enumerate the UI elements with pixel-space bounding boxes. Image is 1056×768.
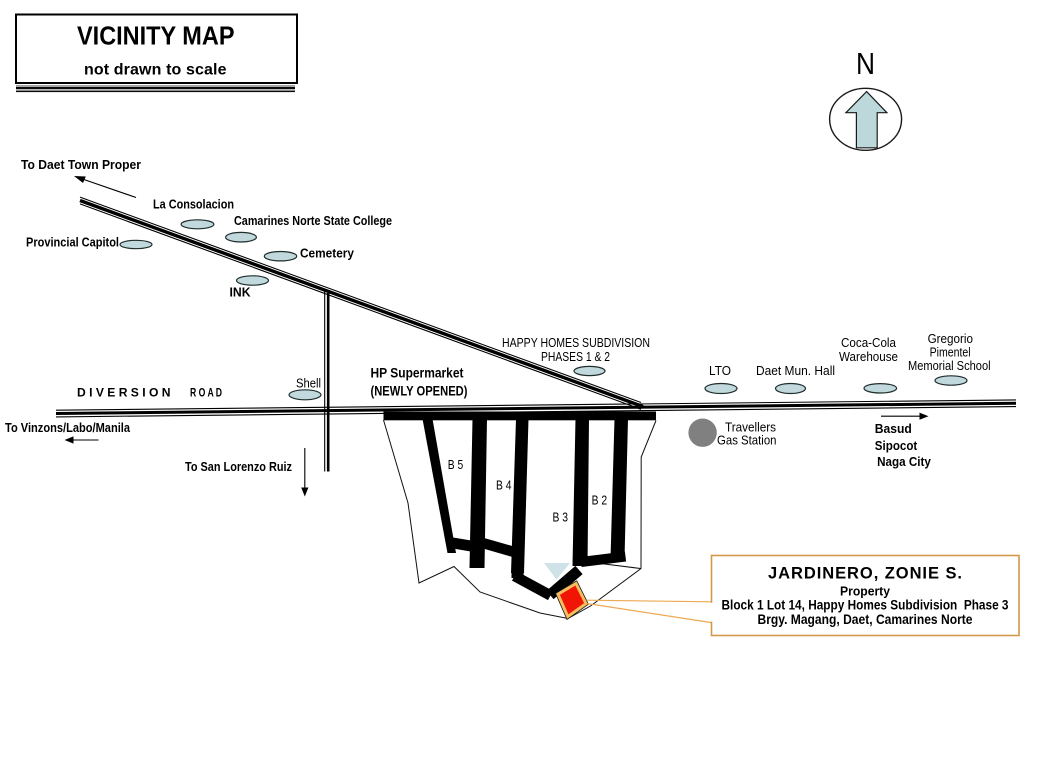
svg-text:La Consolacion: La Consolacion <box>153 197 234 212</box>
svg-text:Property: Property <box>840 584 891 599</box>
svg-text:N: N <box>856 46 875 81</box>
svg-text:Provincial Capitol: Provincial Capitol <box>26 235 119 250</box>
svg-text:HAPPY HOMES SUBDIVISION: HAPPY HOMES SUBDIVISION <box>502 336 650 350</box>
svg-text:Basud: Basud <box>875 421 912 436</box>
svg-text:B 3: B 3 <box>553 511 569 525</box>
svg-text:Brgy. Magang, Daet, Camarines: Brgy. Magang, Daet, Camarines Norte <box>758 612 973 627</box>
svg-text:B 4: B 4 <box>496 479 512 493</box>
svg-text:PHASES 1 & 2: PHASES 1 & 2 <box>541 350 610 364</box>
svg-text:JARDINERO, ZONIE S.: JARDINERO, ZONIE S. <box>768 565 962 583</box>
svg-text:VICINITY MAP: VICINITY MAP <box>77 21 235 51</box>
svg-text:Memorial School: Memorial School <box>908 358 991 373</box>
svg-text:R O A D: R O A D <box>190 388 222 400</box>
svg-text:Daet Mun. Hall: Daet Mun. Hall <box>756 363 835 378</box>
svg-text:Naga City: Naga City <box>877 454 931 469</box>
svg-text:Gas Station: Gas Station <box>717 433 777 448</box>
svg-text:Coca-Cola: Coca-Cola <box>841 335 897 350</box>
svg-text:(NEWLY OPENED): (NEWLY OPENED) <box>371 383 468 398</box>
svg-text:Camarines Norte State College: Camarines Norte State College <box>234 213 392 228</box>
svg-text:not drawn to scale: not drawn to scale <box>84 62 227 79</box>
svg-text:To San Lorenzo Ruiz: To San Lorenzo Ruiz <box>185 459 292 474</box>
svg-text:Sipocot: Sipocot <box>875 438 918 453</box>
svg-text:INK: INK <box>230 285 252 300</box>
svg-text:D I V E R S I O N: D I V E R S I O N <box>77 388 171 400</box>
svg-text:B 2: B 2 <box>592 494 608 508</box>
svg-text:To Vinzons/Labo/Manila: To Vinzons/Labo/Manila <box>5 420 131 435</box>
svg-text:Block 1 Lot 14, Happy Homes Su: Block 1 Lot 14, Happy Homes Subdivision … <box>722 598 1009 613</box>
svg-text:HP Supermarket: HP Supermarket <box>371 366 464 381</box>
svg-text:Warehouse: Warehouse <box>839 349 898 364</box>
svg-text:Cemetery: Cemetery <box>300 246 355 261</box>
svg-text:LTO: LTO <box>709 363 731 378</box>
svg-text:B 5: B 5 <box>448 458 464 472</box>
svg-text:Shell: Shell <box>296 376 321 391</box>
svg-text:To Daet Town Proper: To Daet Town Proper <box>21 157 141 172</box>
